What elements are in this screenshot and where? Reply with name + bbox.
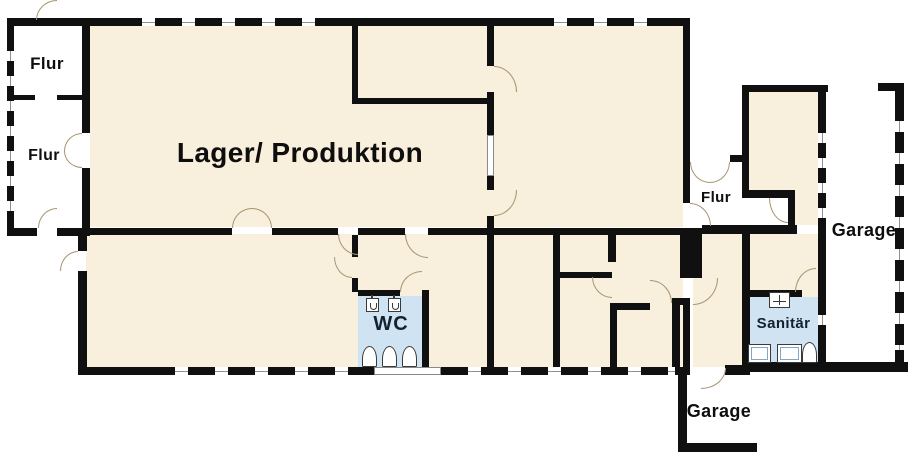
room-label-sanitaer: Sanitär [749, 316, 818, 331]
wall-segment [818, 85, 826, 118]
urinal-tick [393, 295, 395, 299]
tray-inner [751, 347, 768, 360]
window-band [527, 18, 660, 26]
wall-segment [683, 155, 690, 162]
room-label-flur-mid-left: Flur [22, 148, 66, 164]
wall-segment [487, 216, 494, 375]
wall-segment [352, 26, 358, 100]
wall-segment [608, 235, 616, 262]
wall-segment [78, 271, 87, 375]
floor-plan: Flur Flur Lager/ Produktion WC Flur Gara… [0, 0, 916, 460]
door-arc [690, 162, 710, 183]
window-band [115, 18, 330, 26]
wall-segment [678, 443, 757, 452]
wall-segment [88, 228, 232, 235]
window-band [441, 367, 675, 375]
wall-segment [742, 85, 828, 92]
room-right-wing-upper [749, 92, 820, 198]
sink-icon [769, 292, 790, 308]
wall-segment [683, 305, 690, 375]
room-label-garage-east: Garage [828, 221, 900, 239]
shaft-wall [680, 228, 702, 278]
wall-segment [7, 228, 37, 236]
urinal-bowl [392, 303, 399, 310]
wall-segment [672, 298, 680, 367]
toilet-icon [382, 346, 397, 367]
door-arc [769, 198, 788, 223]
sink-line [773, 301, 786, 303]
door-arc [38, 208, 57, 228]
wall-segment [487, 26, 494, 66]
wall-segment [610, 303, 617, 367]
toilet-icon [402, 346, 417, 367]
door-arc [64, 133, 82, 151]
room-right-wing-nook-east [795, 198, 820, 225]
window-plain [487, 135, 494, 176]
wall-segment [553, 235, 560, 367]
wall-segment [13, 95, 35, 100]
window-band [818, 118, 826, 222]
room-label-garage-south: Garage [683, 402, 755, 420]
wall-segment [487, 92, 494, 135]
wall-segment [82, 18, 90, 133]
wall-segment [78, 236, 87, 251]
wall-segment [358, 228, 405, 235]
door-arc [710, 162, 730, 183]
room-label-wc: WC [368, 314, 414, 334]
wall-segment [422, 290, 429, 367]
shower-tray-icon [777, 344, 802, 363]
wall-segment [272, 228, 338, 235]
wall-segment [683, 18, 690, 157]
wall-segment [683, 157, 690, 203]
wall-segment [895, 350, 904, 372]
room-label-lager-produktion: Lager/ Produktion [160, 139, 440, 167]
toilet-icon [362, 346, 377, 367]
urinal-tick [371, 295, 373, 299]
door-arc [36, 0, 57, 20]
door-arc [60, 251, 78, 271]
toilet-icon [802, 342, 817, 363]
urinal-icon [366, 298, 379, 312]
wall-segment [487, 176, 494, 190]
door-arc [701, 368, 726, 389]
window-plain [374, 367, 441, 375]
wall-segment [82, 168, 90, 236]
tray-inner [780, 347, 799, 360]
wall-segment [878, 83, 904, 91]
wall-segment [672, 298, 690, 305]
wall-segment [788, 190, 795, 225]
window-band [148, 367, 374, 375]
wall-segment [428, 228, 683, 235]
room-label-flur-east: Flur [692, 190, 740, 205]
urinal-bowl [370, 303, 377, 310]
urinal-icon [388, 298, 401, 312]
wall-segment [742, 362, 908, 372]
window-band [7, 36, 14, 216]
wall-segment [742, 85, 749, 155]
door-arc [690, 203, 711, 226]
wall-segment [818, 222, 826, 300]
wall-segment [57, 95, 88, 100]
wall-segment [352, 98, 490, 104]
room-label-flur-top-left: Flur [24, 55, 70, 72]
room-lager-produktion [90, 26, 683, 227]
door-arc [64, 151, 82, 168]
wall-segment [610, 303, 650, 310]
window-band [818, 300, 826, 340]
shower-tray-icon [748, 344, 771, 363]
